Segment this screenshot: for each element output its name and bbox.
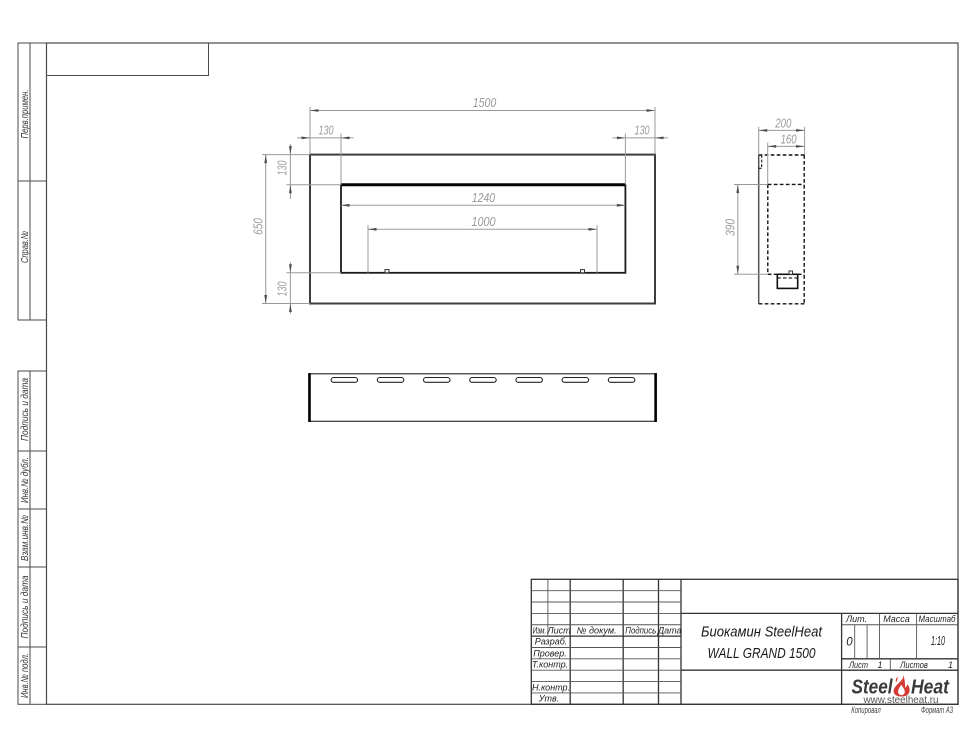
svg-text:Дата: Дата <box>657 625 682 635</box>
svg-text:1: 1 <box>948 660 953 670</box>
svg-text:Утв.: Утв. <box>538 694 559 704</box>
svg-text:Лист: Лист <box>848 660 868 670</box>
svg-text:1240: 1240 <box>472 191 495 205</box>
svg-text:Подпись и дата: Подпись и дата <box>20 378 31 441</box>
svg-text:Формат А3: Формат А3 <box>921 705 953 715</box>
svg-text:200: 200 <box>775 116 792 130</box>
svg-text:1500: 1500 <box>473 96 497 110</box>
svg-text:№ докум.: № докум. <box>577 625 617 635</box>
svg-text:Н.контр.: Н.контр. <box>532 682 570 692</box>
svg-text:650: 650 <box>252 218 266 235</box>
svg-text:Биокамин SteelHeat: Биокамин SteelHeat <box>701 623 823 640</box>
svg-text:390: 390 <box>724 219 738 236</box>
svg-text:Инв.№ подл.: Инв.№ подл. <box>20 653 31 698</box>
svg-text:WALL GRAND 1500: WALL GRAND 1500 <box>708 645 817 662</box>
svg-text:Инв.№ дубл.: Инв.№ дубл. <box>19 457 31 503</box>
svg-text:130: 130 <box>319 123 334 137</box>
svg-text:Подпись и дата: Подпись и дата <box>20 575 31 638</box>
svg-text:Листов: Листов <box>899 660 928 670</box>
svg-text:130: 130 <box>276 281 290 296</box>
svg-text:130: 130 <box>635 123 650 137</box>
svg-text:Лит.: Лит. <box>845 614 867 624</box>
svg-text:1: 1 <box>877 660 882 670</box>
svg-text:1:10: 1:10 <box>931 634 945 648</box>
svg-text:Взам.инв.№: Взам.инв.№ <box>20 515 31 561</box>
svg-text:130: 130 <box>276 160 290 175</box>
svg-text:Разраб.: Разраб. <box>535 637 568 647</box>
svg-text:Справ.№: Справ.№ <box>20 231 31 263</box>
svg-text:Т.контр.: Т.контр. <box>532 660 568 670</box>
svg-text:Масса: Масса <box>883 614 910 624</box>
svg-text:Копировал: Копировал <box>851 705 881 715</box>
svg-text:Изм.: Изм. <box>533 625 547 635</box>
svg-text:Перв.примен.: Перв.примен. <box>20 90 31 139</box>
svg-text:Масштаб: Масштаб <box>919 614 957 624</box>
svg-text:Подпись: Подпись <box>625 625 656 635</box>
svg-text:1000: 1000 <box>472 215 496 229</box>
svg-text:160: 160 <box>781 132 797 146</box>
svg-text:Провер.: Провер. <box>533 648 567 658</box>
svg-text:Лист: Лист <box>546 625 571 635</box>
svg-text:0: 0 <box>846 637 853 649</box>
